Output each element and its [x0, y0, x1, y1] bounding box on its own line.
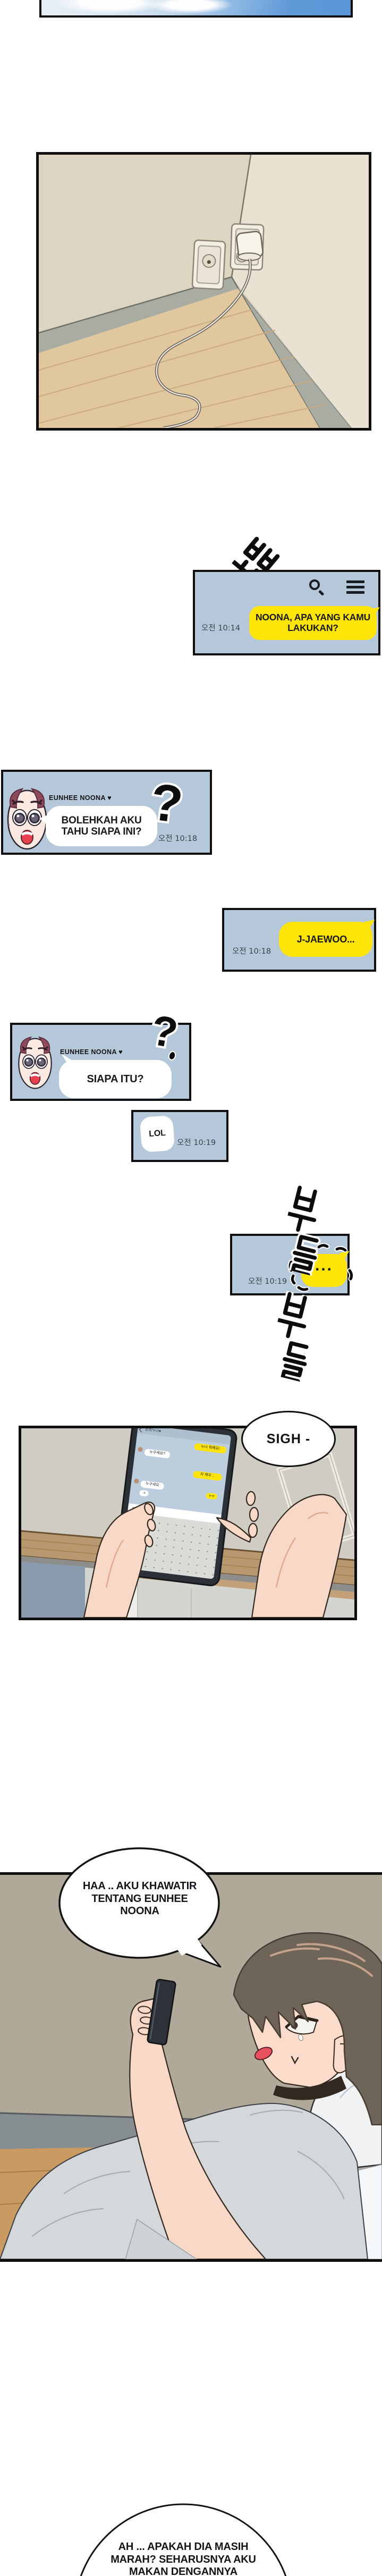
chat-message-text: BOLEHKAH AKU TAHU SIAPA INI? — [46, 813, 157, 840]
contact-avatar — [16, 1034, 54, 1090]
contact-name: EUNHEE NOONA ♥ — [49, 794, 112, 802]
sigh-text: SIGH - — [267, 1432, 310, 1447]
speech-text: HAA .. AKU KHAWATIR TENTANG EUNHEE NOONA — [73, 1880, 206, 1918]
wall-outlet-left — [192, 240, 226, 290]
chat-lol-panel: LOL 오전 10:19 — [131, 1110, 228, 1162]
chat-message-text: SIAPA ITU? — [87, 1073, 144, 1085]
bottom-speech-bubble: AH ... APAKAH DIA MASIH MARAH? SEHARUSNY… — [80, 2501, 287, 2576]
chat-message-text: J-JAEWOO... — [297, 934, 355, 945]
bubble-tail — [363, 920, 377, 932]
chat-message-text: LOL — [149, 1129, 166, 1139]
sigh-bubble: SIGH - — [241, 1411, 336, 1467]
svg-text:?: ? — [148, 1007, 182, 1057]
chat-jaewoo-panel: 오전 10:18 J-JAEWOO... — [222, 908, 376, 972]
chat-message-text: NOONA, APA YANG KAMU LAKUKAN? — [249, 610, 377, 635]
message-timestamp: 오전 10:14 — [201, 622, 240, 633]
question-mark-sfx: ? — [143, 1007, 185, 1062]
room-corner-panel — [36, 152, 371, 431]
room-art — [39, 155, 369, 428]
chat-bubble-sent: J-JAEWOO... — [279, 922, 372, 957]
webtoon-page: 오전 10:14 NOONA, APA YANG KAMU LAKUKAN? E… — [0, 0, 382, 2576]
message-timestamp: 오전 10:18 — [158, 832, 197, 844]
menu-icon — [346, 580, 364, 595]
chat-bubble-received: SIAPA ITU? — [59, 1060, 172, 1098]
cloud-art — [57, 0, 164, 14]
svg-text:?: ? — [147, 772, 183, 831]
contact-name: EUNHEE NOONA ♥ — [60, 1048, 123, 1056]
chat-bubble-received: LOL — [140, 1115, 175, 1152]
cloud-art — [148, 0, 233, 14]
sfx-tremble-bottom — [264, 1290, 324, 1385]
chat-header-panel: 오전 10:14 NOONA, APA YANG KAMU LAKUKAN? — [193, 570, 380, 655]
speech-text: AH ... APAKAH DIA MASIH MARAH? SEHARUSNY… — [98, 2541, 268, 2576]
message-timestamp: 오전 10:18 — [232, 945, 271, 956]
haa-speech-bubble: HAA .. AKU KHAWATIR TENTANG EUNHEE NOONA — [58, 1847, 228, 1972]
search-icon — [309, 579, 325, 595]
question-mark-sfx: ? — [146, 772, 183, 831]
message-timestamp: 오전 10:19 — [177, 1137, 216, 1148]
sky-panel — [39, 0, 353, 18]
phone-charger — [236, 231, 264, 260]
chat-bubble-sent: NOONA, APA YANG KAMU LAKUKAN? — [249, 606, 377, 640]
message-timestamp: 오전 10:19 — [248, 1275, 287, 1286]
chat-bubble-received: BOLEHKAH AKU TAHU SIAPA INI? — [46, 806, 157, 846]
